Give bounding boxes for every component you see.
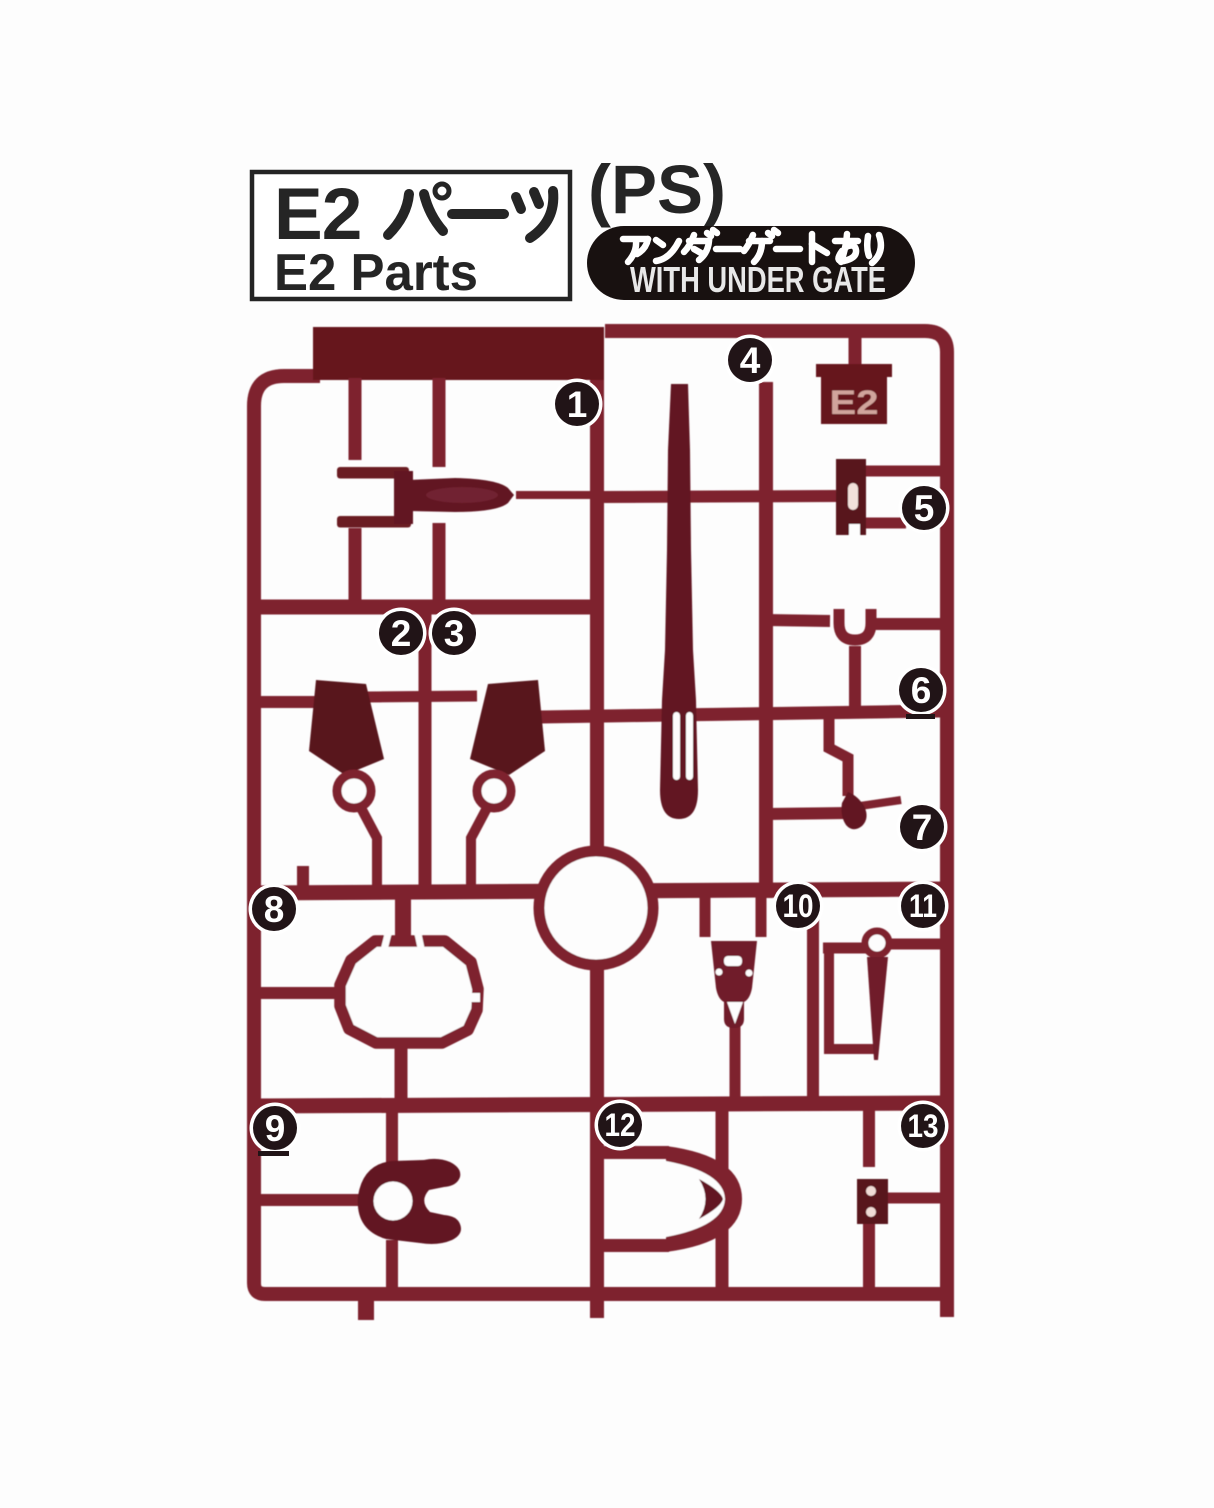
svg-text:1: 1 [567, 384, 588, 425]
svg-text:3: 3 [444, 613, 465, 654]
svg-text:E2 Parts: E2 Parts [274, 244, 478, 302]
svg-text:8: 8 [264, 889, 285, 930]
svg-text:2: 2 [391, 613, 412, 654]
svg-text:WITH UNDER GATE: WITH UNDER GATE [630, 259, 886, 300]
svg-text:E2: E2 [830, 384, 879, 422]
svg-text:E2: E2 [274, 174, 361, 255]
svg-text:4: 4 [740, 340, 761, 381]
svg-text:9: 9 [265, 1108, 286, 1149]
svg-text:6: 6 [911, 670, 932, 711]
svg-text:5: 5 [914, 488, 935, 529]
svg-text:10: 10 [783, 888, 814, 924]
svg-text:11: 11 [909, 888, 937, 924]
svg-text:12: 12 [605, 1107, 636, 1143]
svg-text:7: 7 [912, 807, 933, 848]
svg-text:(PS): (PS) [588, 151, 726, 228]
svg-text:13: 13 [908, 1108, 939, 1144]
